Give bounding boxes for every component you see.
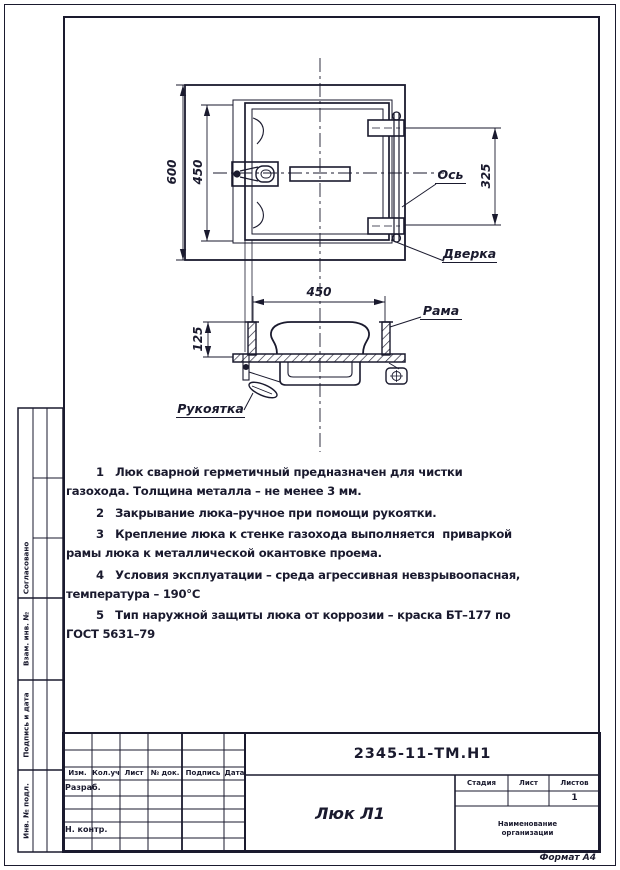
dim-325-label: 325: [479, 163, 493, 188]
note-item: 2 Закрывание люка–ручное при помощи руко…: [66, 504, 523, 523]
staff-developed-label: Разраб.: [65, 780, 125, 796]
note-item: 4 Условия эксплуатации – среда агрессивн…: [66, 566, 523, 604]
notes-block: 1 Люк сварной герметичный предназначен д…: [66, 463, 523, 647]
frame-label: Рама: [420, 303, 462, 320]
handle-top-view: [232, 162, 278, 186]
doc-number: 2345-11-ТМ.Н1: [245, 733, 600, 775]
section-dim-450-lines: [253, 296, 385, 322]
sheets-total-value: 1: [549, 791, 600, 806]
rev-header-podpis: Подпись: [182, 767, 224, 780]
sheets-header: Листов: [549, 775, 600, 791]
section-dim-450-label: 450: [306, 285, 331, 299]
rev-header-izm: Изм.: [63, 767, 92, 780]
org-name-line2: организации: [502, 829, 554, 838]
axis-label: Ось: [435, 167, 466, 184]
drawing-title: Люк Л1: [245, 775, 455, 852]
stamp-label-inv-podl: Инв. № подл.: [21, 783, 30, 839]
staff-ncontrol-label: Н. контр.: [65, 822, 125, 838]
note-item: 5 Тип наружной защиты люка от коррозии –…: [66, 606, 523, 644]
dim-600-label: 600: [165, 159, 179, 184]
note-item: 3 Крепление люка к стенке газохода выпол…: [66, 525, 523, 563]
stage-header: Стадия: [455, 775, 508, 791]
door-label: Дверка: [442, 246, 497, 263]
stamp-label-podpis-data: Подпись и дата: [21, 692, 30, 757]
drawing-sheet: 600 450 325 450 125 Ось Дверка Рама Руко…: [0, 0, 620, 870]
org-name: Наименование организации: [455, 806, 600, 852]
handle-label: Рукоятка: [176, 401, 245, 418]
right-lug: [386, 363, 407, 384]
stamp-label-agreed: Согласовано: [21, 542, 30, 595]
frame-leader: [390, 317, 421, 327]
rev-header-koluch: Кол.уч: [92, 767, 120, 780]
hinges-top-view: [368, 112, 404, 242]
rev-header-list: Лист: [120, 767, 148, 780]
sheet-header: Лист: [508, 775, 549, 791]
section-view: [203, 296, 421, 410]
section-dim-125-label: 125: [191, 326, 205, 351]
dim-450-label: 450: [191, 159, 205, 184]
section-dim-125-lines: [203, 322, 246, 357]
format-label: Формат А4: [520, 853, 596, 863]
note-item: 1 Люк сварной герметичный предназначен д…: [66, 463, 523, 501]
axis-leader: [402, 184, 436, 207]
org-name-line1: Наименование: [498, 820, 557, 829]
door-leader: [391, 240, 444, 261]
rev-header-data: Дата: [224, 767, 245, 780]
handle-leader: [244, 393, 253, 410]
rev-header-ndok: № док.: [148, 767, 182, 780]
stamp-label-vzam-inv: Взам. инв. №: [21, 612, 30, 666]
